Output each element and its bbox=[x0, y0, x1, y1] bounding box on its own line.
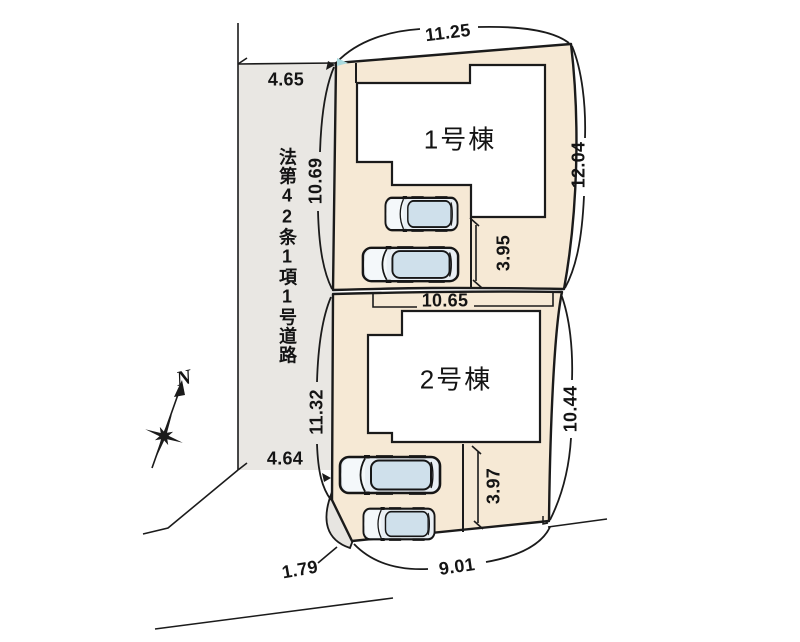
dim-lot2-left: 11.32 bbox=[307, 389, 328, 435]
road-name-label: 法第42条1項1号道路 bbox=[278, 148, 296, 365]
site-plan: 4.65 11.25 10.69 12.04 3.95 10.65 11.32 … bbox=[0, 0, 800, 642]
compass-star bbox=[145, 414, 183, 457]
road-top-edge bbox=[238, 63, 336, 64]
dim-lot2-right: 10.44 bbox=[561, 386, 582, 433]
boundary-extension-line bbox=[548, 519, 607, 527]
car-lot2-large bbox=[340, 455, 440, 496]
dim-divider: 10.65 bbox=[422, 291, 469, 312]
dim-lot1-parking: 3.95 bbox=[494, 235, 515, 271]
dim-lot2-parking: 3.97 bbox=[484, 468, 505, 504]
dim-road-width-top: 4.65 bbox=[268, 70, 304, 91]
dim-lot1-right: 12.04 bbox=[569, 142, 590, 189]
leader-corner-cut bbox=[318, 547, 337, 563]
site-plan-drawing bbox=[0, 0, 800, 642]
building-1-label: 1号棟 bbox=[424, 120, 496, 157]
road-width-arrow-bottom bbox=[322, 473, 331, 482]
building-2-label: 2号棟 bbox=[420, 360, 492, 397]
dim-lot1-left: 10.69 bbox=[306, 158, 327, 205]
compass bbox=[145, 380, 185, 468]
car-lot1-compact bbox=[385, 196, 457, 233]
car-lot1-large bbox=[363, 246, 458, 284]
car-lot2-compact bbox=[363, 507, 434, 542]
dim-road-width-bottom: 4.64 bbox=[267, 449, 303, 470]
bottom-road-line bbox=[155, 598, 393, 629]
road-corner-diagonal bbox=[143, 470, 238, 534]
